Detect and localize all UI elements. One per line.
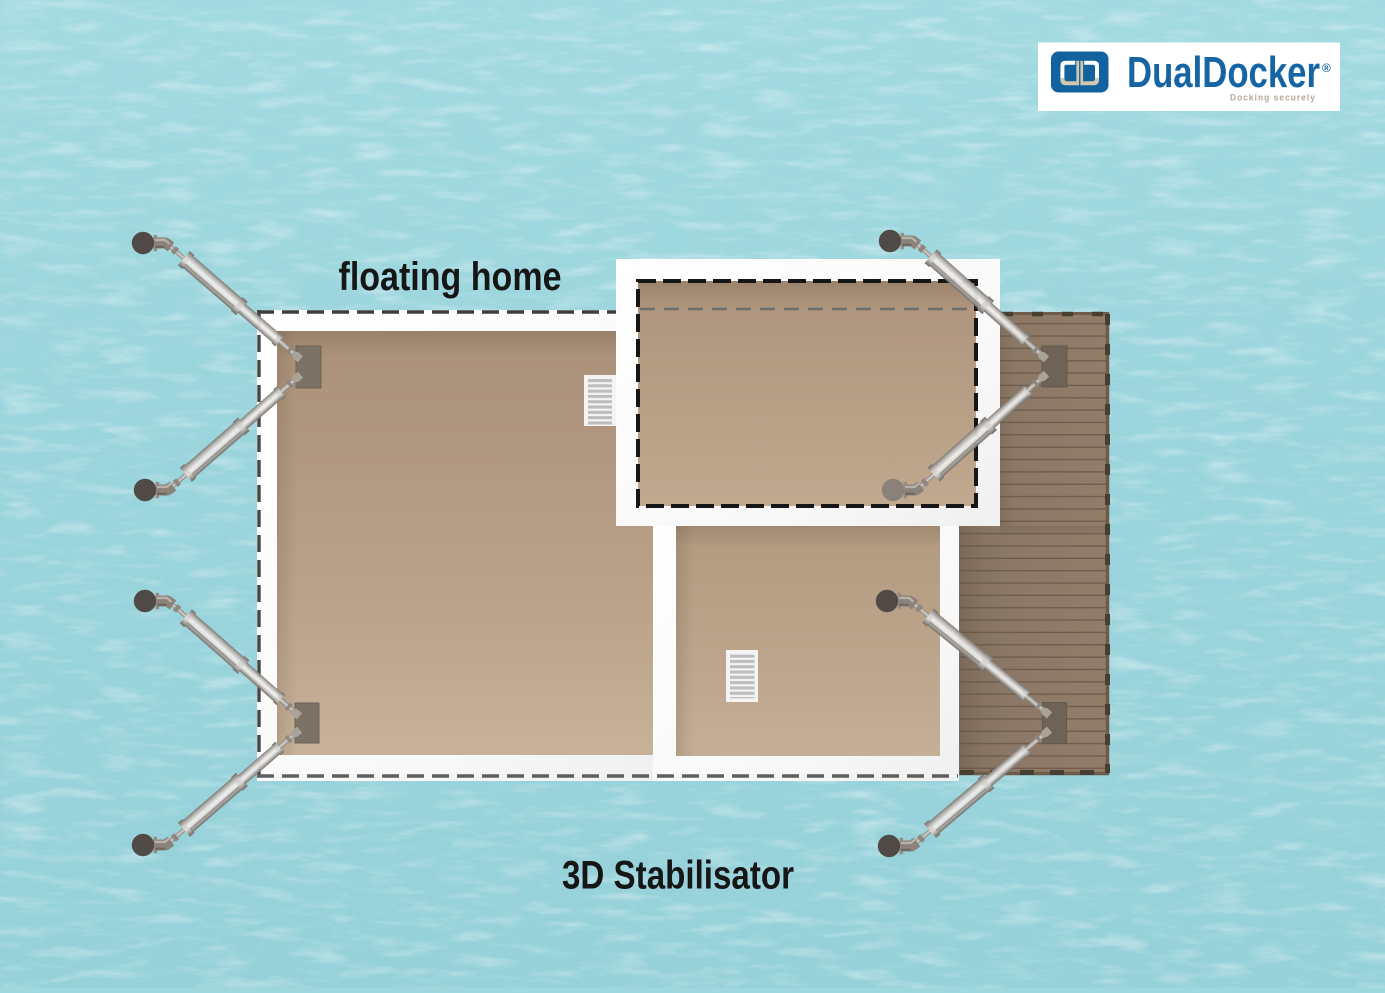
svg-text:®: ® (1322, 61, 1331, 75)
svg-text:floating home: floating home (339, 255, 562, 299)
svg-text:DualDocker: DualDocker (1127, 48, 1320, 97)
svg-text:Docking securely: Docking securely (1230, 93, 1316, 104)
svg-text:3D Stabilisator: 3D Stabilisator (562, 854, 794, 898)
